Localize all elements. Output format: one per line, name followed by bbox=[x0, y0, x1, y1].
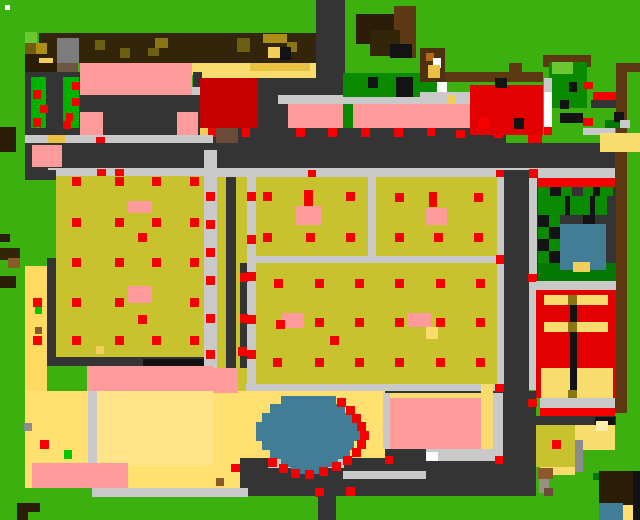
map-tile bbox=[247, 315, 256, 324]
map-tile bbox=[343, 471, 426, 479]
map-tile bbox=[35, 327, 42, 334]
map-tile bbox=[33, 118, 41, 127]
map-tile bbox=[115, 177, 124, 186]
map-tile bbox=[540, 398, 615, 408]
map-tile bbox=[24, 423, 32, 431]
map-tile bbox=[282, 313, 304, 328]
map-tile bbox=[33, 336, 42, 345]
map-tile bbox=[48, 135, 65, 143]
map-tile bbox=[120, 48, 130, 58]
fence-bar bbox=[445, 72, 543, 82]
map-tile bbox=[591, 100, 616, 108]
map-tile bbox=[346, 192, 355, 201]
map-tile bbox=[238, 347, 247, 356]
map-tile bbox=[570, 196, 590, 215]
map-tile bbox=[538, 187, 550, 196]
map-tile bbox=[426, 208, 447, 225]
map-tile bbox=[276, 320, 285, 329]
map-tile bbox=[263, 233, 272, 242]
map-tile bbox=[190, 177, 199, 186]
map-tile bbox=[478, 117, 489, 128]
map-tile bbox=[40, 105, 48, 113]
map-tile bbox=[436, 279, 445, 288]
map-tile bbox=[394, 128, 403, 137]
map-tile bbox=[148, 48, 159, 56]
map-tile bbox=[593, 92, 616, 100]
map-tile bbox=[72, 298, 81, 307]
map-tile bbox=[33, 90, 41, 99]
map-tile bbox=[35, 307, 42, 314]
map-tile bbox=[395, 193, 404, 202]
map-tile bbox=[0, 276, 16, 288]
map-tile bbox=[544, 92, 552, 127]
map-tile bbox=[565, 196, 570, 215]
map-tile bbox=[429, 192, 437, 207]
map-tile bbox=[536, 281, 616, 290]
map-tile bbox=[538, 251, 549, 263]
map-tile bbox=[72, 82, 80, 90]
map-tile bbox=[274, 279, 283, 288]
map-tile bbox=[237, 38, 250, 52]
map-tile bbox=[268, 458, 277, 467]
map-tile bbox=[357, 422, 366, 431]
map-tile bbox=[549, 251, 560, 263]
map-tile bbox=[343, 104, 353, 128]
map-tile bbox=[88, 391, 97, 465]
map-tile bbox=[426, 452, 438, 461]
map-tile bbox=[570, 368, 577, 390]
map-tile bbox=[616, 63, 640, 72]
map-tile bbox=[273, 358, 282, 367]
map-tile bbox=[408, 313, 431, 327]
map-tile bbox=[315, 318, 324, 327]
map-tile bbox=[544, 78, 552, 92]
pink-building-mid bbox=[87, 366, 213, 391]
map-tile bbox=[395, 279, 404, 288]
map-tile bbox=[434, 233, 443, 242]
ne-sand bbox=[600, 133, 640, 152]
map-tile bbox=[593, 187, 600, 196]
map-tile bbox=[213, 368, 238, 393]
map-tile bbox=[560, 100, 569, 109]
map-tile bbox=[190, 336, 199, 345]
map-tile bbox=[395, 358, 404, 367]
pink-building-south bbox=[32, 463, 128, 488]
map-tile bbox=[355, 279, 364, 288]
map-tile bbox=[596, 421, 608, 431]
map-tile bbox=[343, 456, 352, 465]
map-tile bbox=[456, 130, 465, 138]
map-tile bbox=[247, 350, 256, 359]
map-tile bbox=[25, 32, 37, 43]
map-tile bbox=[395, 233, 404, 242]
map-tile bbox=[568, 322, 577, 332]
map-tile bbox=[72, 98, 80, 106]
map-tile bbox=[552, 62, 573, 74]
map-tile bbox=[538, 239, 549, 251]
map-tile bbox=[569, 82, 577, 92]
map-tile bbox=[304, 190, 313, 207]
main-road bbox=[25, 143, 616, 170]
map-tile bbox=[383, 393, 390, 449]
map-tile bbox=[474, 193, 483, 202]
map-tile bbox=[549, 215, 560, 227]
map-tile bbox=[206, 350, 215, 359]
map-tile bbox=[497, 177, 504, 393]
map-tile bbox=[544, 127, 552, 135]
map-tile bbox=[280, 47, 291, 60]
map-tile bbox=[355, 318, 364, 327]
map-tile bbox=[352, 448, 361, 457]
map-tile bbox=[242, 128, 250, 137]
se-dark-building bbox=[599, 471, 633, 505]
map-tile bbox=[575, 440, 583, 472]
barn-porch bbox=[541, 368, 613, 398]
east-fence bbox=[615, 152, 627, 413]
map-tile bbox=[568, 390, 577, 398]
map-tile bbox=[361, 128, 370, 137]
map-tile bbox=[66, 113, 73, 121]
map-tile bbox=[206, 314, 215, 323]
map-tile bbox=[495, 456, 503, 464]
map-tile bbox=[538, 468, 553, 479]
map-tile bbox=[138, 233, 147, 242]
pixel-map bbox=[0, 0, 640, 520]
map-tile bbox=[17, 503, 40, 512]
map-tile bbox=[247, 192, 256, 201]
south-road-stub bbox=[318, 496, 336, 520]
map-tile bbox=[247, 235, 256, 244]
map-tile bbox=[36, 43, 47, 54]
map-tile bbox=[115, 258, 124, 267]
map-tile bbox=[0, 234, 10, 242]
map-tile bbox=[493, 393, 503, 461]
map-tile bbox=[552, 440, 561, 449]
map-tile bbox=[570, 332, 577, 368]
map-tile bbox=[305, 470, 314, 479]
map-tile bbox=[584, 82, 593, 89]
map-tile bbox=[476, 318, 485, 327]
map-tile bbox=[319, 467, 328, 476]
map-tile bbox=[623, 505, 633, 520]
map-tile bbox=[206, 276, 215, 285]
map-tile bbox=[600, 187, 613, 196]
map-tile bbox=[25, 170, 56, 180]
map-tile bbox=[128, 201, 152, 213]
map-tile bbox=[72, 336, 81, 345]
map-tile bbox=[514, 118, 524, 129]
game-map-screenshot bbox=[0, 0, 640, 520]
map-tile bbox=[72, 218, 81, 227]
map-tile bbox=[474, 233, 483, 242]
map-tile bbox=[549, 227, 560, 239]
map-tile bbox=[115, 218, 124, 227]
map-tile bbox=[346, 487, 355, 496]
map-tile bbox=[152, 258, 161, 267]
map-tile bbox=[346, 233, 355, 242]
map-tile bbox=[538, 215, 549, 227]
map-tile bbox=[247, 272, 256, 281]
pink-strip bbox=[288, 104, 470, 128]
map-tile bbox=[250, 63, 310, 71]
map-tile bbox=[96, 346, 104, 354]
map-tile bbox=[590, 196, 595, 215]
map-tile bbox=[544, 488, 553, 496]
map-tile bbox=[355, 358, 364, 367]
map-tile bbox=[231, 464, 240, 472]
map-tile bbox=[152, 218, 161, 227]
map-tile bbox=[560, 113, 583, 123]
map-tile bbox=[330, 336, 339, 345]
map-tile bbox=[97, 391, 213, 465]
map-tile bbox=[550, 187, 561, 196]
map-tile bbox=[177, 112, 198, 135]
map-tile bbox=[152, 177, 161, 186]
map-tile bbox=[25, 43, 36, 54]
median-road bbox=[226, 177, 236, 391]
map-tile bbox=[368, 177, 376, 265]
map-tile bbox=[216, 128, 238, 143]
map-tile bbox=[0, 127, 16, 152]
pink-building-north bbox=[80, 63, 192, 95]
map-tile bbox=[529, 169, 538, 178]
map-tile bbox=[240, 314, 248, 323]
map-tile bbox=[528, 399, 536, 407]
map-tile bbox=[291, 469, 300, 478]
map-tile bbox=[190, 298, 199, 307]
map-tile bbox=[390, 44, 412, 58]
map-tile bbox=[436, 358, 445, 367]
pink-building-se bbox=[390, 398, 481, 449]
map-tile bbox=[296, 206, 321, 225]
map-tile bbox=[296, 128, 305, 137]
map-tile bbox=[63, 121, 71, 129]
map-tile bbox=[92, 488, 248, 497]
map-tile bbox=[595, 196, 607, 215]
map-tile bbox=[152, 336, 161, 345]
map-tile bbox=[138, 315, 147, 324]
map-tile bbox=[155, 38, 168, 48]
map-tile bbox=[337, 398, 346, 407]
map-tile bbox=[263, 192, 272, 201]
map-tile bbox=[128, 286, 152, 303]
map-tile bbox=[263, 34, 287, 43]
map-tile bbox=[633, 471, 640, 520]
map-tile bbox=[279, 464, 288, 473]
map-tile bbox=[385, 456, 393, 464]
map-tile bbox=[436, 318, 445, 327]
map-tile bbox=[538, 196, 565, 215]
map-tile bbox=[240, 273, 248, 282]
map-tile bbox=[72, 177, 81, 186]
map-tile bbox=[570, 305, 577, 322]
white-speck bbox=[5, 5, 10, 10]
map-tile bbox=[80, 112, 103, 135]
map-tile bbox=[216, 478, 224, 486]
map-tile bbox=[476, 358, 485, 367]
map-tile bbox=[206, 220, 215, 229]
map-tile bbox=[115, 336, 124, 345]
map-tile bbox=[495, 78, 507, 88]
map-tile bbox=[190, 218, 199, 227]
map-tile bbox=[64, 450, 72, 459]
red-building-west bbox=[200, 78, 258, 128]
south-pond bbox=[256, 422, 361, 441]
map-tile bbox=[206, 192, 215, 201]
map-tile bbox=[47, 258, 56, 357]
map-tile bbox=[360, 431, 369, 440]
map-tile bbox=[368, 77, 378, 88]
map-tile bbox=[315, 358, 324, 367]
map-tile bbox=[496, 255, 504, 264]
map-tile bbox=[426, 327, 438, 339]
map-tile bbox=[57, 63, 78, 72]
map-tile bbox=[95, 40, 105, 50]
map-tile bbox=[561, 187, 572, 196]
map-tile bbox=[143, 359, 207, 366]
map-tile bbox=[40, 440, 49, 449]
map-tile bbox=[620, 120, 630, 128]
map-tile bbox=[540, 408, 615, 416]
map-tile bbox=[583, 187, 593, 196]
map-tile bbox=[190, 258, 199, 267]
gray-building bbox=[57, 38, 79, 63]
map-tile bbox=[495, 384, 503, 392]
map-tile bbox=[476, 279, 485, 288]
map-tile bbox=[315, 279, 324, 288]
map-tile bbox=[396, 77, 413, 97]
map-tile bbox=[509, 63, 522, 72]
east-road bbox=[504, 170, 529, 396]
map-tile bbox=[328, 128, 337, 137]
map-tile bbox=[206, 248, 215, 257]
map-tile bbox=[599, 503, 623, 520]
map-tile bbox=[306, 233, 315, 242]
map-tile bbox=[17, 512, 28, 520]
map-tile bbox=[72, 258, 81, 267]
map-tile bbox=[8, 258, 20, 268]
map-tile bbox=[332, 462, 341, 471]
map-tile bbox=[583, 118, 593, 126]
map-tile bbox=[115, 298, 124, 307]
map-tile bbox=[25, 63, 57, 72]
pink-building-west bbox=[32, 145, 62, 167]
map-tile bbox=[538, 227, 549, 239]
map-tile bbox=[217, 177, 226, 391]
ne-red-band bbox=[537, 178, 615, 187]
map-tile bbox=[573, 262, 590, 272]
map-tile bbox=[262, 441, 354, 450]
map-tile bbox=[568, 295, 577, 305]
map-tile bbox=[428, 65, 440, 78]
map-tile bbox=[549, 239, 560, 251]
map-tile bbox=[427, 128, 435, 136]
map-tile bbox=[33, 298, 42, 307]
map-tile bbox=[395, 318, 404, 327]
